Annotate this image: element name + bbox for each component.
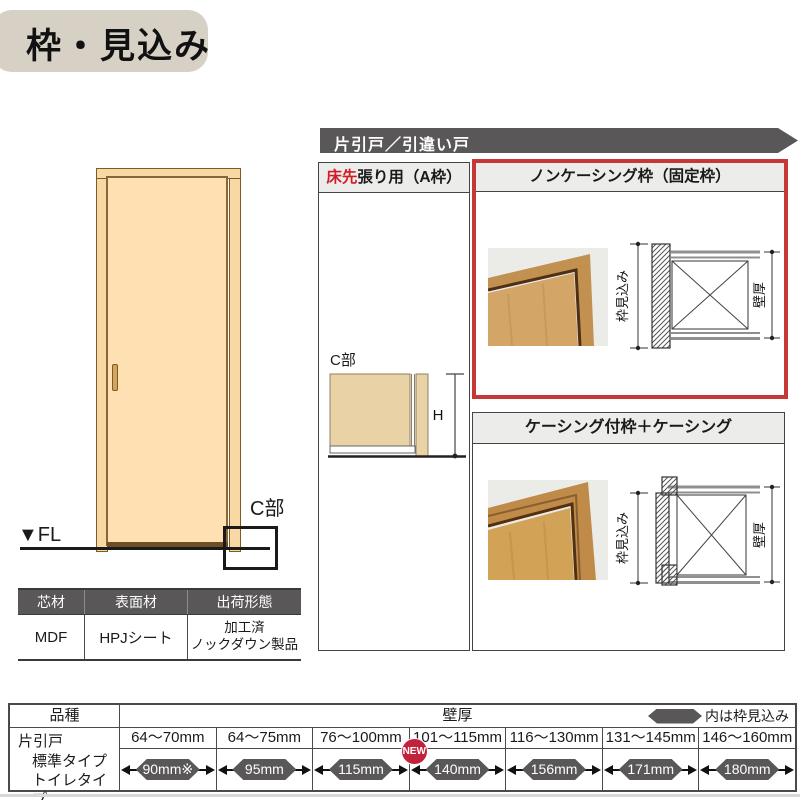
frame-depth-badge: 140mm bbox=[426, 759, 490, 780]
arrow-right-icon bbox=[688, 765, 697, 775]
door-panel bbox=[106, 176, 228, 546]
door-handle bbox=[112, 364, 118, 391]
wall-thickness-label: 壁厚 bbox=[752, 522, 767, 548]
c-part-section-diagram: H bbox=[322, 366, 472, 464]
material-shipping-value: 加工済 ノックダウン製品 bbox=[188, 615, 301, 659]
bottom-divider bbox=[0, 794, 800, 797]
material-table-value-row: MDF HPJシート 加工済 ノックダウン製品 bbox=[18, 614, 301, 659]
section-a-header-red: 床先 bbox=[326, 169, 357, 186]
legend: 内は枠見込み bbox=[648, 705, 789, 727]
catalog-page: 枠・見込み ▼FL C部 芯材 表面材 出荷形態 MDF HPJシート 加工済 … bbox=[0, 0, 800, 800]
row-label-standard: 標準タイプ bbox=[10, 752, 119, 771]
casing-door-photo bbox=[488, 480, 608, 580]
shipping-line1: 加工済 bbox=[188, 620, 301, 637]
material-core-value: MDF bbox=[18, 615, 85, 659]
frame-section bbox=[416, 374, 428, 456]
section-a-header: 床先張り用（A枠） bbox=[319, 163, 469, 193]
frame-depth-row: 90mm※95mm115mm140mmNEW156mm171mm180mm bbox=[120, 749, 795, 790]
material-surface-value: HPJシート bbox=[85, 615, 188, 659]
door-right-stile bbox=[229, 168, 241, 552]
arrow-right-icon bbox=[592, 765, 601, 775]
frame-section-hatched bbox=[652, 244, 670, 348]
frame-depth-label: 枠見込み bbox=[615, 270, 630, 322]
material-table-header-row: 芯材 表面材 出荷形態 bbox=[18, 590, 301, 614]
material-table: 芯材 表面材 出荷形態 MDF HPJシート 加工済 ノックダウン製品 bbox=[18, 588, 301, 661]
arrow-left-icon bbox=[314, 765, 323, 775]
height-label: H bbox=[433, 407, 444, 424]
c-part-label: C部 bbox=[250, 492, 284, 521]
arrow-right-icon bbox=[399, 765, 408, 775]
frame-depth-badge: 90mm※ bbox=[136, 759, 200, 780]
wall-range-cell: 146〜160mm bbox=[699, 728, 795, 748]
new-badge: NEW bbox=[401, 738, 428, 765]
frame-depth-badge: 156mm bbox=[522, 759, 586, 780]
arrow-right-icon bbox=[206, 765, 215, 775]
arrow-left-icon bbox=[121, 765, 130, 775]
noncasing-section-diagram: 枠見込み 壁厚 bbox=[612, 238, 788, 356]
legend-note: 内は枠見込み bbox=[705, 706, 789, 726]
spec-table-header-row: 品種 壁厚 内は枠見込み bbox=[10, 705, 795, 728]
frame-depth-badge: 180mm bbox=[715, 759, 779, 780]
frame-depth-cell: 115mm bbox=[313, 749, 410, 790]
wall-range-cell: 131〜145mm bbox=[603, 728, 700, 748]
casing-section-diagram: 枠見込み 壁厚 bbox=[612, 473, 788, 595]
noncasing-door-photo bbox=[488, 248, 608, 346]
type-column-header: 品種 bbox=[10, 705, 120, 727]
wall-range-cell: 64〜70mm bbox=[120, 728, 217, 748]
arrow-left-icon bbox=[218, 765, 227, 775]
wall-range-cell: 116〜130mm bbox=[506, 728, 603, 748]
frame-depth-cell: 95mm bbox=[217, 749, 314, 790]
spec-table: 品種 壁厚 内は枠見込み 片引戸 標準タイプ トイレタイプ 64〜70mm64〜… bbox=[8, 703, 797, 792]
page-title: 枠・見込み bbox=[26, 18, 211, 69]
c-part-detail-rect bbox=[223, 526, 278, 570]
frame-depth-badge: 171mm bbox=[619, 759, 683, 780]
material-header-shipping: 出荷形態 bbox=[188, 590, 301, 614]
arrow-right-icon bbox=[785, 765, 794, 775]
legend-hexagon-icon bbox=[648, 709, 702, 724]
product-type-cell: 片引戸 標準タイプ トイレタイプ bbox=[10, 728, 120, 790]
frame-depth-cell: 90mm※ bbox=[120, 749, 217, 790]
section-a-header-rest: 張り用（A枠） bbox=[357, 169, 461, 186]
arrow-left-icon bbox=[411, 765, 420, 775]
wall-thickness-label: 壁厚 bbox=[752, 282, 767, 308]
frame-depth-cell: 140mmNEW bbox=[410, 749, 507, 790]
bottom-rail-section bbox=[330, 446, 415, 453]
floor-level-label: ▼FL bbox=[18, 524, 61, 547]
arrow-left-icon bbox=[604, 765, 613, 775]
wall-range-cell: 64〜75mm bbox=[217, 728, 314, 748]
material-header-core: 芯材 bbox=[18, 590, 85, 614]
casing-bottom-section bbox=[662, 565, 677, 585]
wall-range-cell: 76〜100mm bbox=[313, 728, 410, 748]
arrow-right-icon bbox=[495, 765, 504, 775]
frame-depth-cell: 180mm bbox=[699, 749, 795, 790]
door-type-banner-label: 片引戸／引違い戸 bbox=[334, 131, 470, 155]
frame-depth-cell: 156mm bbox=[506, 749, 603, 790]
casing-top-section bbox=[662, 477, 677, 495]
arrow-left-icon bbox=[700, 765, 709, 775]
noncasing-header: ノンケーシング枠（固定枠） bbox=[476, 163, 784, 192]
frame-depth-badge: 95mm bbox=[232, 759, 296, 780]
arrow-left-icon bbox=[507, 765, 516, 775]
frame-depth-badge: 115mm bbox=[329, 759, 393, 780]
frame-depth-label: 枠見込み bbox=[615, 512, 630, 564]
material-header-surface: 表面材 bbox=[85, 590, 188, 614]
shipping-line2: ノックダウン製品 bbox=[188, 637, 301, 654]
panel-section bbox=[330, 374, 410, 446]
frame-depth-cell: 171mm bbox=[603, 749, 700, 790]
wall-range-row: 64〜70mm64〜75mm76〜100mm101〜115mm116〜130mm… bbox=[120, 728, 795, 749]
spec-data-area: 64〜70mm64〜75mm76〜100mm101〜115mm116〜130mm… bbox=[120, 728, 795, 790]
row-label-door-type: 片引戸 bbox=[10, 731, 119, 752]
casing-header: ケーシング付枠＋ケーシング bbox=[473, 413, 784, 444]
arrow-right-icon bbox=[302, 765, 311, 775]
